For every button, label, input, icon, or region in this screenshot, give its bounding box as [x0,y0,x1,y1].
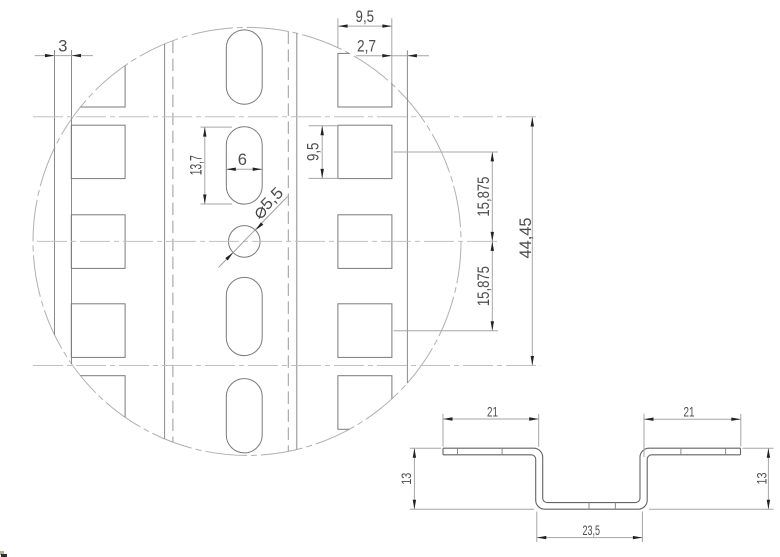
svg-text:13: 13 [754,472,770,484]
svg-text:15,875: 15,875 [475,177,493,217]
svg-text:9,5: 9,5 [356,8,375,26]
svg-text:21: 21 [487,403,498,419]
svg-text:23,5: 23,5 [583,522,601,538]
svg-text:13,7: 13,7 [188,155,206,175]
svg-text:21: 21 [684,404,695,420]
svg-text:2,7: 2,7 [357,38,376,56]
svg-text:13: 13 [398,473,414,485]
svg-text:3: 3 [58,38,67,56]
svg-text:9,5: 9,5 [304,143,322,162]
svg-text:6: 6 [238,151,247,169]
svg-text:44,45: 44,45 [517,218,535,259]
svg-text:15,875: 15,875 [475,266,493,306]
